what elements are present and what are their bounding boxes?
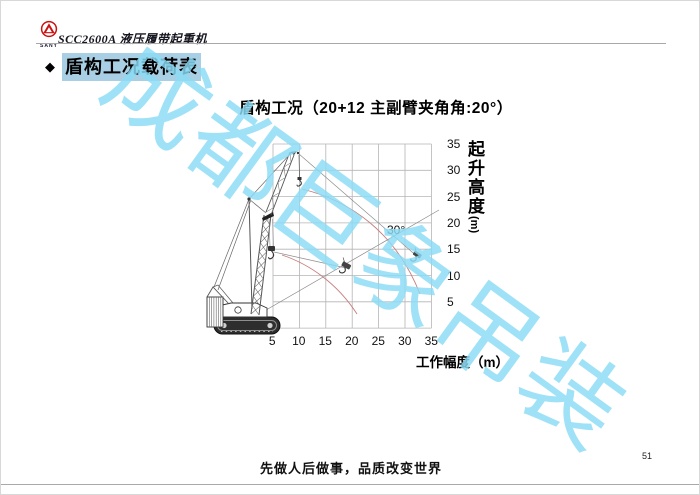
angle-annotation: 30°: [387, 223, 405, 237]
radius-lines: [254, 154, 439, 317]
y-tick: 10: [447, 262, 460, 288]
chart-grid: [273, 144, 431, 328]
crane-illustration: [207, 151, 302, 334]
x-tick: 10: [286, 334, 313, 348]
hook-symbol-outer: [408, 247, 424, 264]
hook-path-upper-arc: [302, 189, 420, 294]
backstay-lines: [214, 199, 251, 290]
main-boom: [251, 215, 271, 315]
x-axis-ticks: 5 10 15 20 25 30 35: [259, 334, 445, 348]
main-hook: [268, 219, 275, 259]
y-axis-ticks: 35 30 25 20 15 10 5: [447, 131, 460, 315]
main-rope-line: [274, 252, 346, 268]
y-axis-title: 起升高度(m): [462, 140, 487, 233]
pendant-lines: [249, 152, 292, 213]
manual-page: SANY SCC2600A 液压履带起重机 ◆ 盾构工况载荷表 盾构工况（20+…: [0, 0, 700, 495]
page-number: 51: [642, 451, 652, 461]
y-tick: 35: [447, 131, 460, 157]
y-tick: 15: [447, 236, 460, 262]
crawler-track: [214, 317, 280, 334]
x-tick: 5: [259, 334, 286, 348]
x-axis-title: 工作幅度（m）: [416, 351, 509, 371]
x-tick: 35: [418, 334, 445, 348]
counterweight: [207, 297, 223, 327]
y-tick: 30: [447, 157, 460, 183]
y-axis-unit: (m): [468, 216, 480, 233]
y-axis-title-text: 起升高度: [465, 140, 484, 216]
x-tick: 20: [339, 334, 366, 348]
load-chart-figure: [1, 1, 700, 495]
jib-rope-line: [299, 154, 419, 258]
mast-apex-sheave: [247, 197, 250, 200]
x-tick: 30: [392, 334, 419, 348]
jib-boom: [266, 151, 299, 215]
x-tick: 15: [312, 334, 339, 348]
footer-divider: [1, 484, 700, 485]
y-tick: 25: [447, 184, 460, 210]
derrick-mast: [249, 199, 252, 309]
x-tick: 25: [365, 334, 392, 348]
hook-path-curves: [282, 189, 420, 314]
y-tick: 5: [447, 289, 460, 315]
footer-slogan: 先做人后做事，品质改变世界: [1, 458, 700, 477]
y-tick: 20: [447, 210, 460, 236]
